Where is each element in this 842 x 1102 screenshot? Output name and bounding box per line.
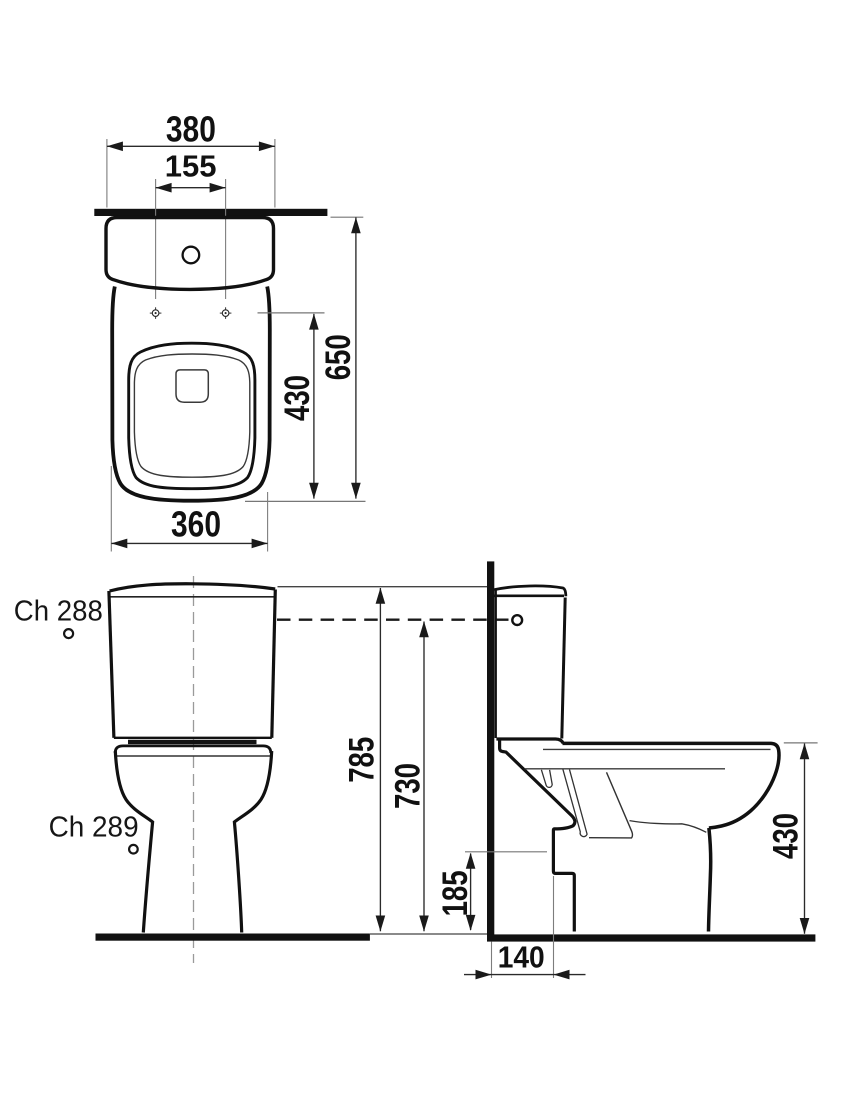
svg-text:430: 430 [278,375,317,421]
svg-text:360: 360 [171,503,221,544]
svg-text:380: 380 [166,109,216,150]
svg-text:650: 650 [319,334,358,380]
svg-text:Ch 288: Ch 288 [14,596,103,628]
svg-text:730: 730 [389,763,428,809]
svg-text:785: 785 [342,737,381,783]
svg-text:185: 185 [436,870,475,916]
svg-text:140: 140 [498,940,545,975]
svg-text:Ch 289: Ch 289 [49,812,139,844]
svg-text:430: 430 [767,813,806,859]
svg-text:155: 155 [165,148,217,183]
